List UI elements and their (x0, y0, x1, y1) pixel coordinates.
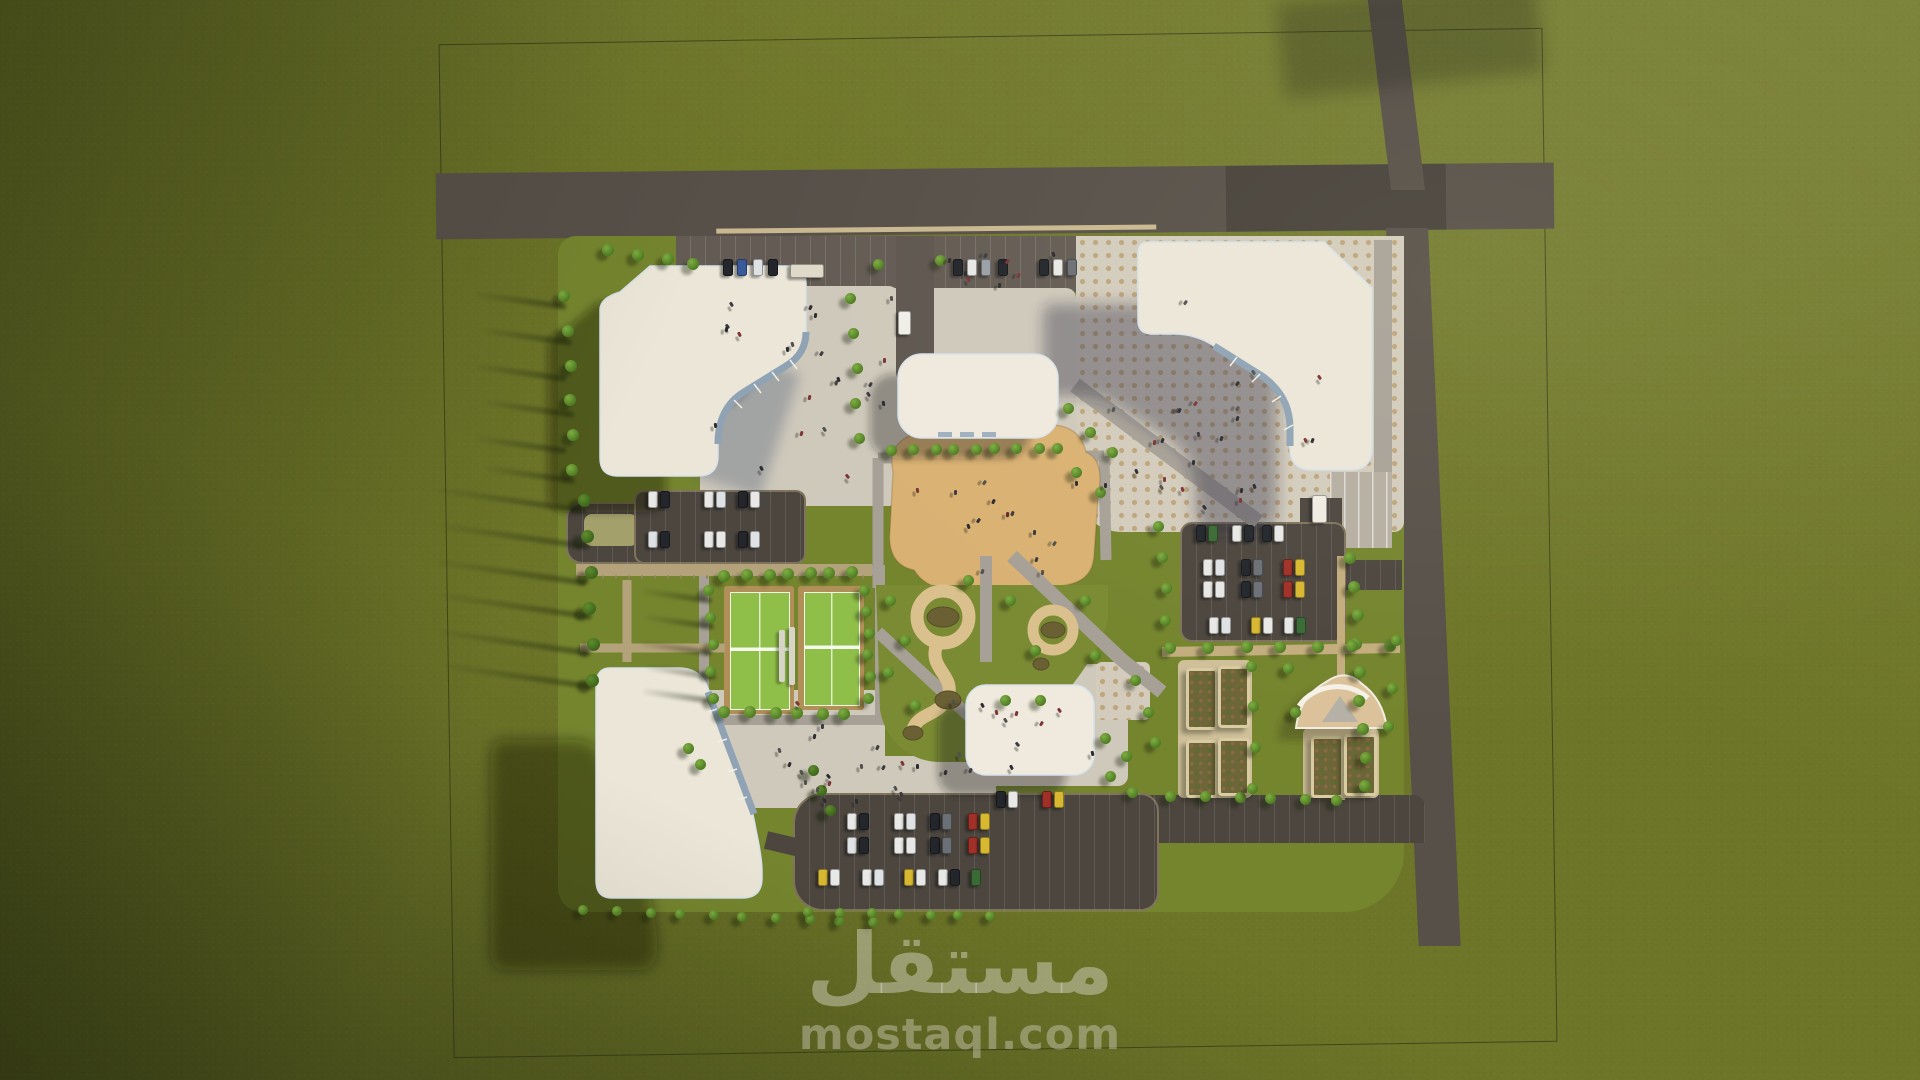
person (1235, 416, 1239, 422)
person (804, 780, 807, 785)
person (788, 762, 792, 768)
person (821, 723, 824, 728)
person (1015, 710, 1019, 715)
person (1010, 511, 1014, 517)
person (799, 770, 803, 776)
person (1075, 481, 1078, 486)
person (1235, 406, 1240, 412)
person (1160, 438, 1164, 444)
person (881, 765, 886, 771)
person (1234, 380, 1239, 386)
person (976, 518, 981, 524)
person (1250, 369, 1255, 375)
person (759, 465, 764, 471)
person (1153, 440, 1156, 445)
person (819, 351, 824, 357)
person (899, 791, 904, 797)
person (725, 327, 728, 332)
person (957, 752, 961, 758)
person (1015, 742, 1020, 747)
person (1035, 557, 1039, 563)
person (954, 490, 957, 495)
person (828, 781, 832, 786)
person (808, 305, 812, 311)
person (944, 769, 948, 774)
person (821, 427, 826, 433)
person (822, 798, 826, 804)
person (1159, 485, 1164, 491)
person (982, 480, 987, 486)
person (1104, 483, 1107, 488)
person (1162, 477, 1165, 482)
person (860, 764, 863, 769)
person (991, 498, 995, 504)
person (947, 258, 951, 264)
person (1310, 437, 1314, 443)
person (883, 358, 886, 363)
person (812, 734, 815, 739)
person (1051, 251, 1055, 257)
person (964, 271, 967, 276)
person (836, 377, 840, 383)
person (790, 341, 794, 346)
site-plan-render: مستقل mostaql.com (0, 0, 1920, 1080)
person (952, 700, 955, 705)
person (799, 430, 803, 436)
person (866, 392, 871, 398)
person (916, 488, 919, 493)
person (994, 710, 998, 715)
person (1111, 406, 1115, 412)
person (1032, 530, 1035, 535)
person (893, 786, 897, 792)
person (1192, 460, 1195, 465)
person (968, 768, 972, 774)
person (1002, 718, 1007, 724)
person (1220, 436, 1224, 441)
person (1253, 484, 1257, 490)
person (736, 332, 741, 338)
person (967, 277, 971, 283)
person (1240, 487, 1243, 492)
person (1057, 708, 1062, 714)
person (714, 423, 717, 428)
person (980, 703, 985, 709)
person (1039, 720, 1044, 726)
person (795, 701, 800, 706)
person (1183, 300, 1188, 306)
person (1303, 437, 1307, 443)
person (1177, 408, 1182, 414)
person (890, 296, 893, 301)
person (729, 301, 734, 307)
person (1052, 541, 1057, 547)
person (1202, 505, 1207, 511)
person (808, 395, 811, 400)
person (777, 748, 781, 753)
person (854, 799, 857, 804)
person (867, 382, 872, 388)
person (813, 313, 816, 318)
person (998, 282, 1001, 287)
person (785, 347, 788, 352)
person (1016, 272, 1020, 278)
person (983, 253, 988, 259)
person (967, 523, 971, 529)
person (1193, 400, 1198, 406)
person (980, 569, 984, 575)
person (1180, 487, 1184, 492)
person (1317, 375, 1322, 381)
person (845, 473, 850, 478)
person (815, 787, 819, 792)
person (1239, 498, 1242, 503)
people-layer (0, 0, 1920, 1080)
person (1091, 751, 1094, 756)
person (1196, 432, 1199, 437)
person (1134, 468, 1138, 474)
person (875, 745, 879, 751)
person (1006, 512, 1009, 517)
person (1004, 259, 1009, 264)
person (825, 773, 830, 778)
person (916, 764, 919, 769)
person (1009, 765, 1013, 771)
person (900, 761, 905, 767)
person (1040, 570, 1043, 575)
person (882, 401, 885, 406)
